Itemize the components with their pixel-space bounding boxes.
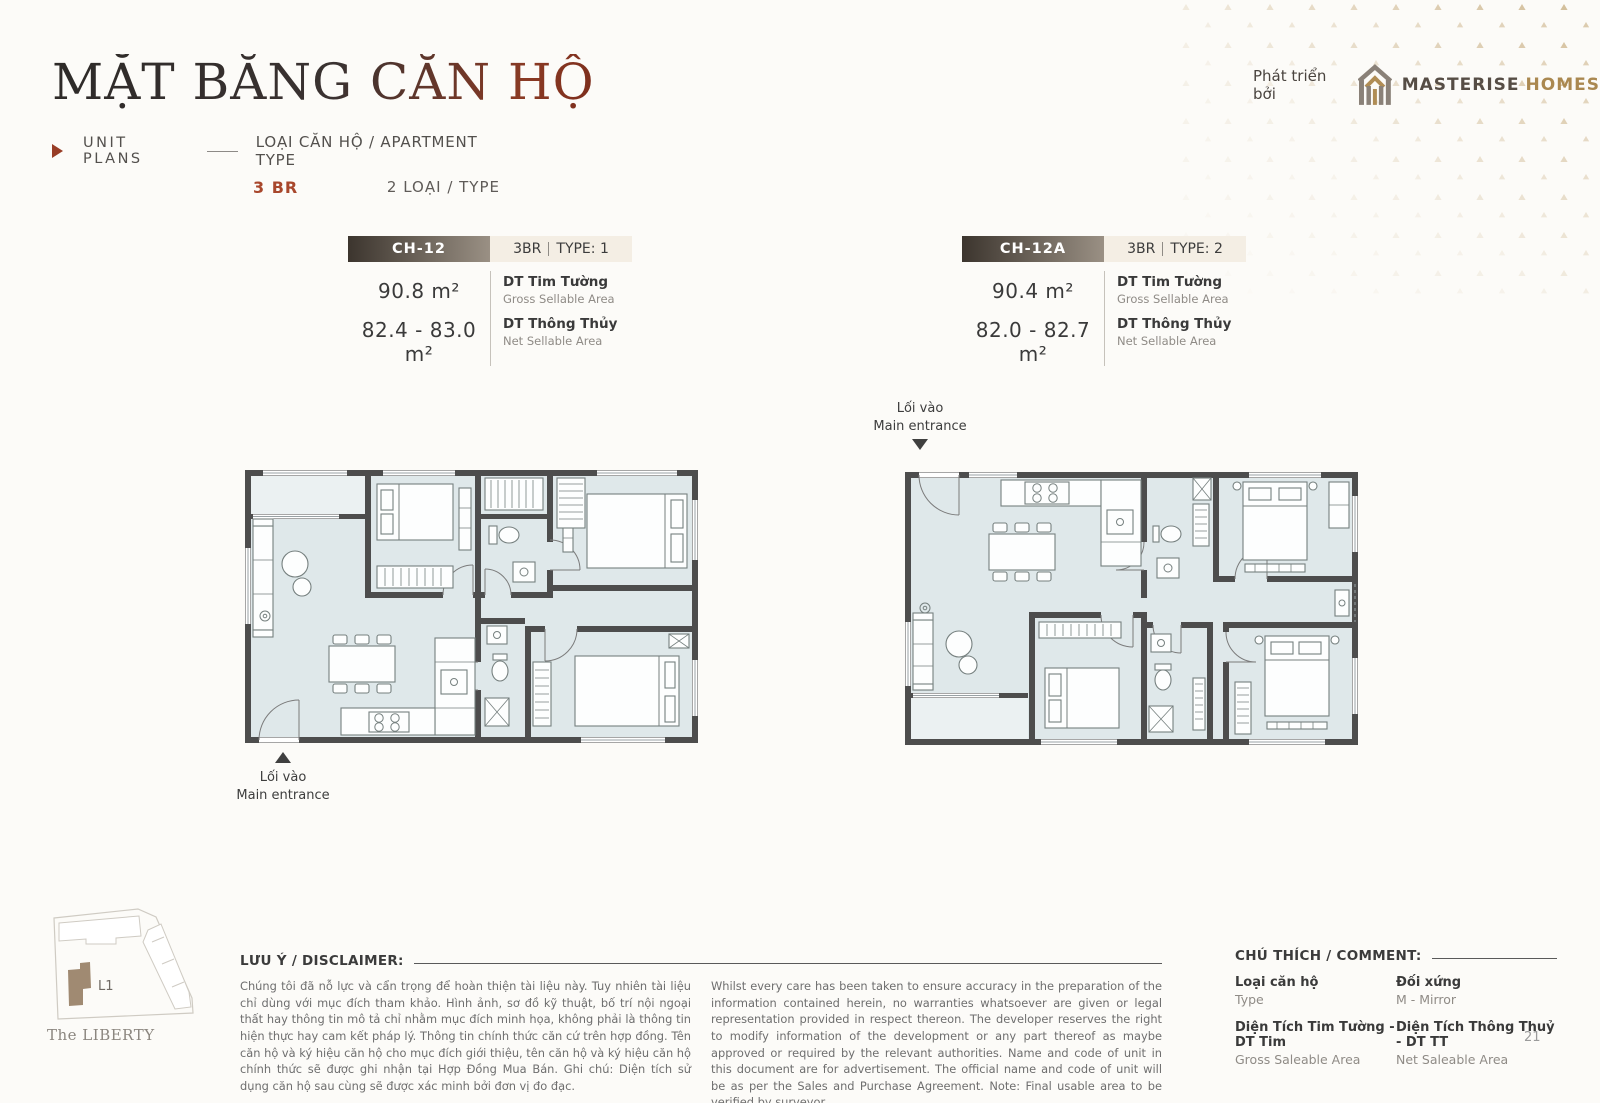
gross-area-label-en: Gross Sellable Area <box>1117 292 1245 306</box>
site-plan-key: L1 <box>42 890 212 1035</box>
disclaimer-text-vi: Chúng tôi đã nỗ lực và cẩn trọng để hoàn… <box>240 978 691 1103</box>
masterise-logo-icon <box>1358 64 1392 106</box>
entrance-label-vi: Lối vào <box>223 769 343 787</box>
entrance-label-ch12a: Lối vào Main entrance <box>860 400 980 450</box>
unit-info-ch12: CH-12 3BR TYPE: 1 90.8 m² 82.4 - 83.0 m²… <box>348 236 632 366</box>
unit-type-chip: 3BR TYPE: 1 <box>490 236 632 262</box>
unit-type: TYPE: 1 <box>556 241 608 257</box>
chip-divider <box>1162 242 1163 256</box>
disclaimer-rule <box>414 963 1162 964</box>
legend-item-vi: Diện Tích Tim Tường - DT Tim <box>1235 1020 1396 1050</box>
entrance-label-en: Main entrance <box>223 787 343 805</box>
legend-item-en: M - Mirror <box>1396 992 1557 1007</box>
net-area-value: 82.0 - 82.7 m² <box>962 318 1104 366</box>
disclaimer-heading: LƯU Ý / DISCLAIMER: <box>240 953 404 969</box>
disclaimer-text-en: Whilst every care has been taken to ensu… <box>711 978 1162 1103</box>
developer-name-main: MASTERISE <box>1402 75 1520 95</box>
chip-divider <box>548 242 549 256</box>
gross-area-label-vi: DT Tim Tường <box>503 274 631 290</box>
legend-heading: CHÚ THÍCH / COMMENT: <box>1235 948 1422 964</box>
legend-item-en: Net Saleable Area <box>1396 1052 1557 1067</box>
unit-bedrooms: 3BR <box>1127 241 1155 257</box>
net-area-label-en: Net Sellable Area <box>1117 334 1245 348</box>
legend-item-vi: Đối xứng <box>1396 975 1557 990</box>
unit-code-badge: CH-12 <box>348 236 490 262</box>
legend-item-vi: Loại căn hộ <box>1235 975 1396 990</box>
unit-bedrooms: 3BR <box>513 241 541 257</box>
gross-area-value: 90.8 m² <box>348 279 490 303</box>
entrance-arrow-down-icon <box>912 439 928 450</box>
developer-name: MASTERISEHOMES <box>1402 75 1600 95</box>
gross-area-value: 90.4 m² <box>962 279 1104 303</box>
subtitle-block: UNIT PLANS LOẠI CĂN HỘ / APARTMENT TYPE … <box>52 133 500 197</box>
entrance-label-en: Main entrance <box>860 418 980 436</box>
legend-item-en: Type <box>1235 992 1396 1007</box>
entrance-arrow-up-icon <box>275 752 291 763</box>
legend-rule <box>1432 958 1557 959</box>
legend-item: Đối xứng M - Mirror <box>1396 975 1557 1007</box>
net-area-value: 82.4 - 83.0 m² <box>348 318 490 366</box>
page-number: 21 <box>1524 1030 1541 1045</box>
floor-plan-ch12 <box>245 470 698 743</box>
entrance-label-ch12: Lối vào Main entrance <box>223 752 343 804</box>
type-count-label: 2 LOẠI / TYPE <box>387 178 500 197</box>
page-title: MẶT BẰNG CĂN HỘ <box>52 54 595 112</box>
bedroom-count-label: 3 BR <box>253 178 298 197</box>
gross-area-label-en: Gross Sellable Area <box>503 292 631 306</box>
unit-info-ch12a: CH-12A 3BR TYPE: 2 90.4 m² 82.0 - 82.7 m… <box>962 236 1246 366</box>
legend-item: Diện Tích Tim Tường - DT Tim Gross Salea… <box>1235 1020 1396 1067</box>
arrow-right-icon <box>52 144 63 158</box>
net-area-label-en: Net Sellable Area <box>503 334 631 348</box>
legend-item: Loại căn hộ Type <box>1235 975 1396 1007</box>
developer-prefix: Phát triển bởi <box>1253 67 1348 103</box>
tower-l1-shape <box>68 962 91 1006</box>
disclaimer-block: LƯU Ý / DISCLAIMER: Chúng tôi đã nỗ lực … <box>240 953 1162 1103</box>
brochure-page: MẶT BẰNG CĂN HỘ UNIT PLANS LOẠI CĂN HỘ /… <box>0 0 1600 1103</box>
unit-code-badge: CH-12A <box>962 236 1104 262</box>
apartment-type-label: LOẠI CĂN HỘ / APARTMENT TYPE <box>256 133 500 169</box>
divider-dash <box>207 151 238 152</box>
entrance-label-vi: Lối vào <box>860 400 980 418</box>
tower-label: L1 <box>98 979 114 994</box>
legend-item-en: Gross Saleable Area <box>1235 1052 1396 1067</box>
floor-plan-ch12a <box>905 472 1358 745</box>
net-area-label-vi: DT Thông Thủy <box>503 316 631 332</box>
developer-block: Phát triển bởi MASTERISEHOMES <box>1253 64 1600 106</box>
unit-plans-label: UNIT PLANS <box>83 135 185 167</box>
net-area-label-vi: DT Thông Thủy <box>1117 316 1245 332</box>
gross-area-label-vi: DT Tim Tường <box>1117 274 1245 290</box>
unit-type: TYPE: 2 <box>1170 241 1222 257</box>
project-name: The LIBERTY <box>47 1026 155 1044</box>
unit-type-chip: 3BR TYPE: 2 <box>1104 236 1246 262</box>
legend-block: CHÚ THÍCH / COMMENT: Loại căn hộ Type Đố… <box>1235 948 1557 1067</box>
developer-name-suffix: HOMES <box>1526 75 1600 95</box>
